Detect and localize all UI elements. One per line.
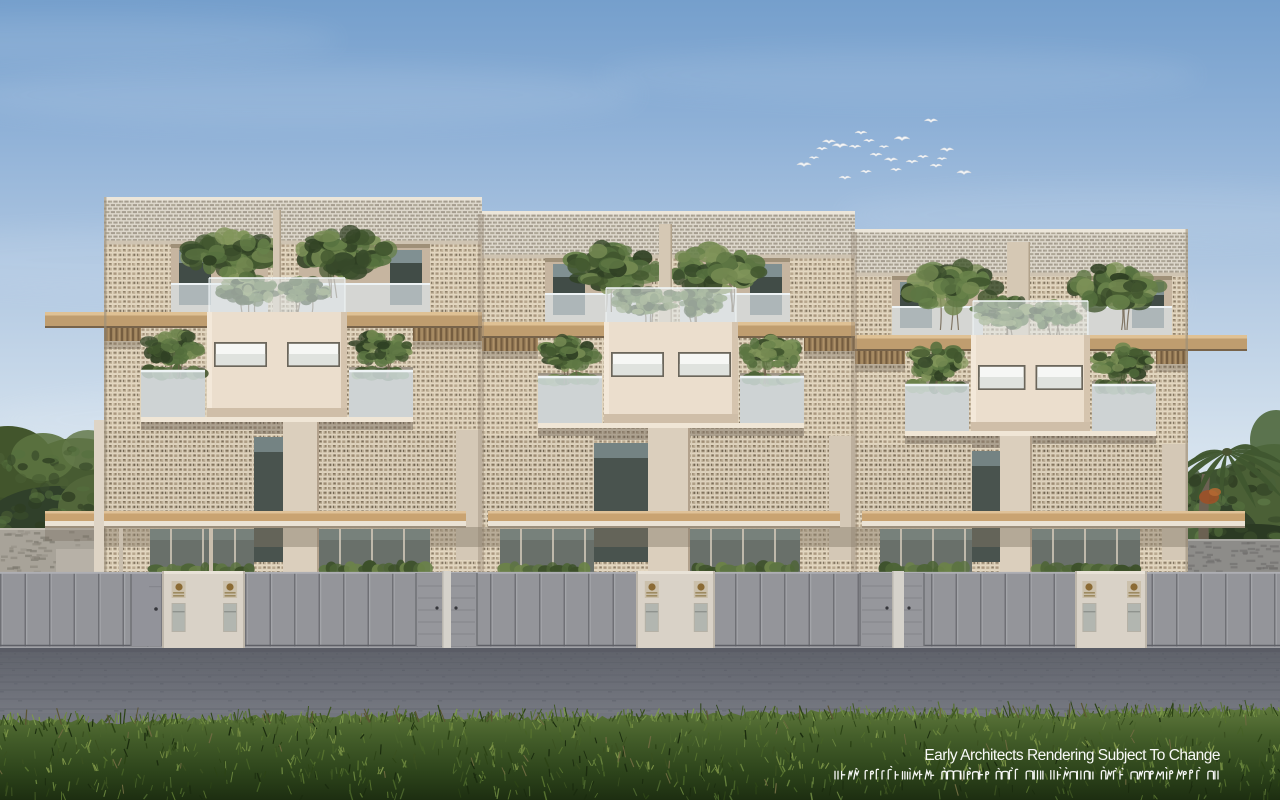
svg-text:Early Architects Rendering Sub: Early Architects Rendering Subject To Ch… xyxy=(924,747,1220,764)
